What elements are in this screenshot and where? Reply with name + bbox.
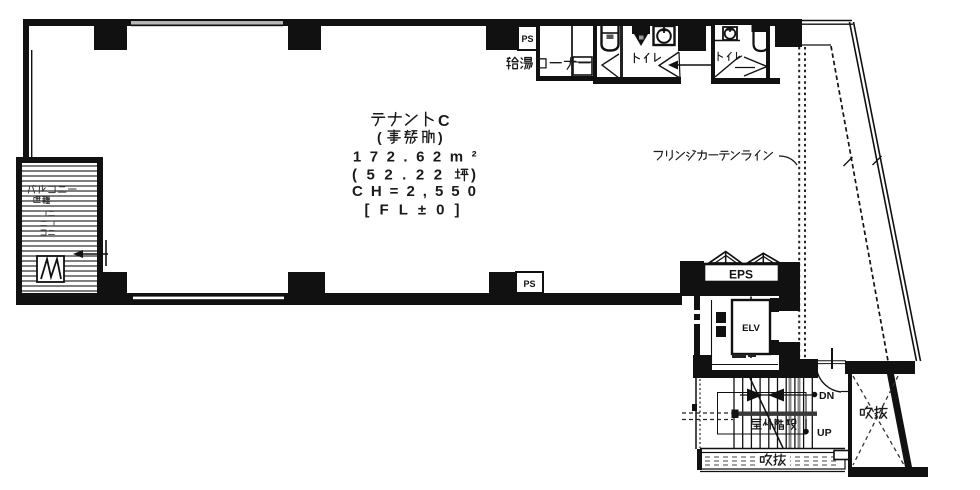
svg-text:(: ( <box>377 129 382 145</box>
svg-text:ELV: ELV <box>742 323 760 334</box>
svg-text:DN: DN <box>819 390 834 402</box>
svg-text:CH=2,550: CH=2,550 <box>352 183 484 200</box>
svg-text:PS: PS <box>523 279 535 289</box>
svg-text:): ) <box>438 129 443 145</box>
svg-text:C: C <box>438 113 450 130</box>
svg-text:(52.22: (52.22 <box>352 167 452 184</box>
svg-text:EPS: EPS <box>729 268 753 282</box>
svg-text:UP: UP <box>817 427 832 439</box>
svg-text:): ) <box>471 167 476 184</box>
svg-text:[FL±0]: [FL±0] <box>365 202 470 219</box>
svg-text:172.62m²: 172.62m² <box>353 149 485 166</box>
svg-text:PS: PS <box>521 34 533 44</box>
